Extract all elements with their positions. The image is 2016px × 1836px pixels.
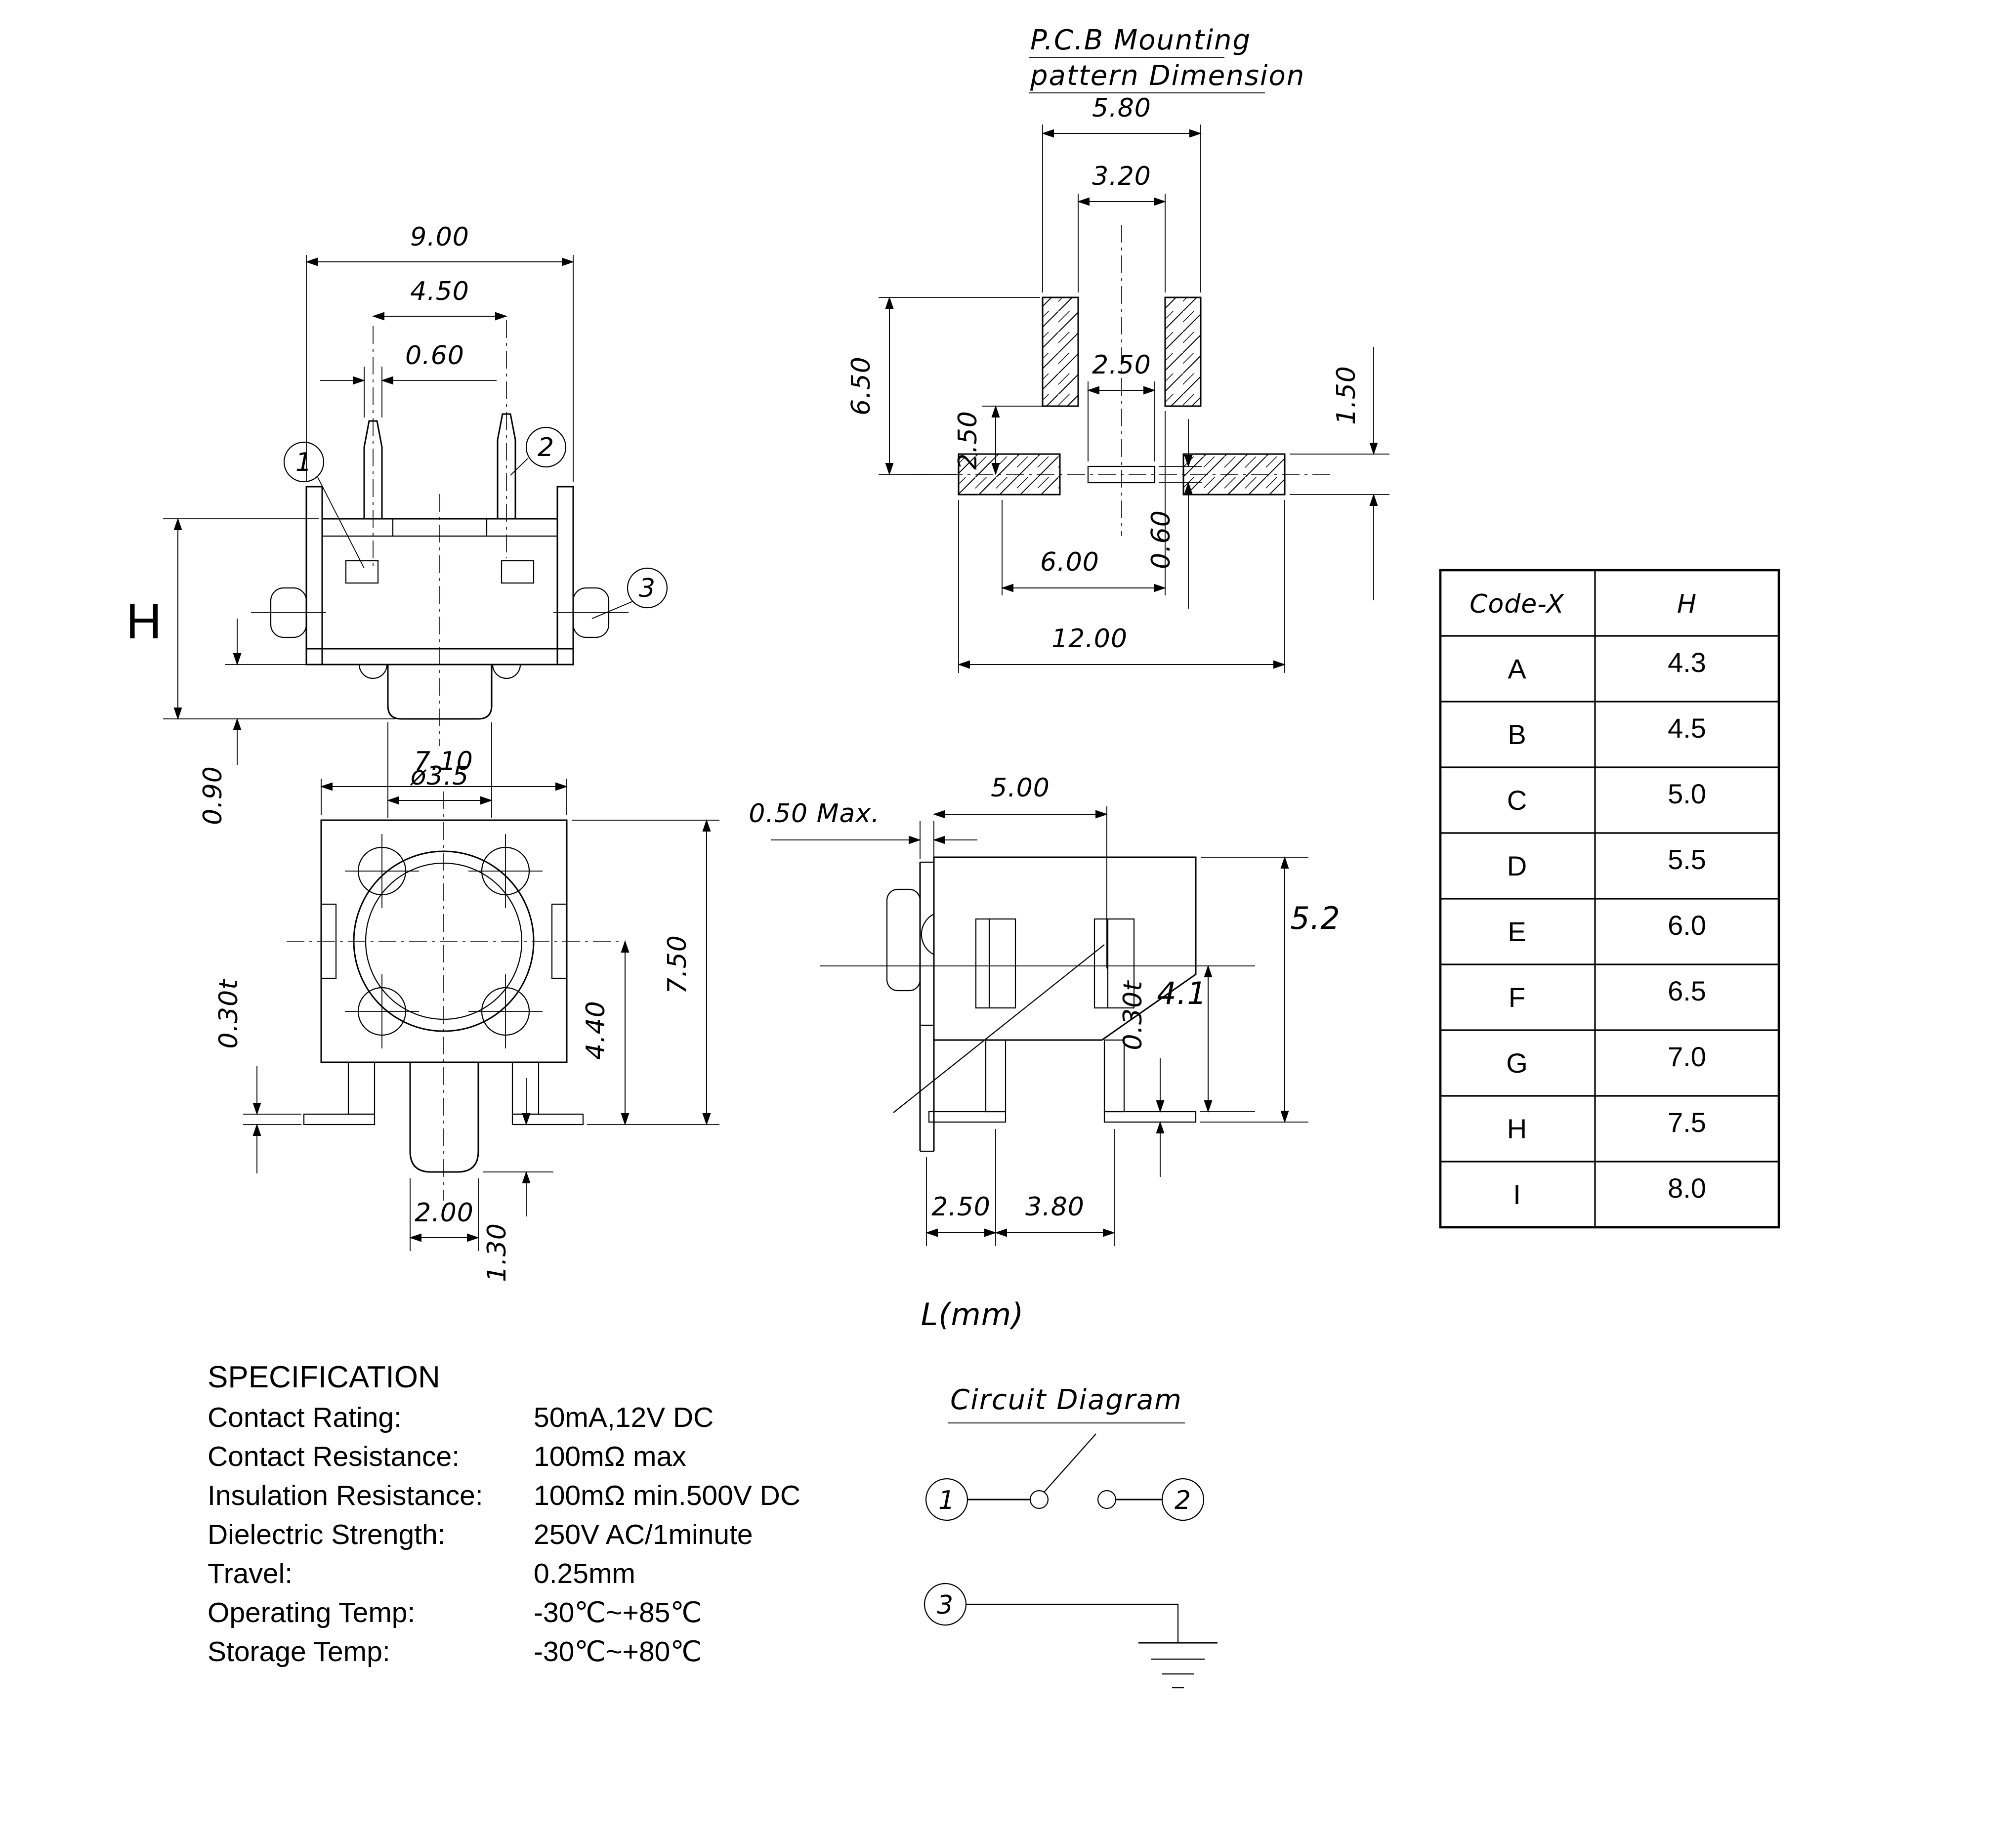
circuit-diagram: Circuit Diagram 1 2 3 [924,1384,1218,1688]
dim-pad-height: 6.50 [846,356,876,416]
lever-line [893,945,1104,1113]
table-cell-h: 8.0 [1668,1172,1706,1204]
button-seat-arc [922,914,934,955]
table-cell-code: B [1508,719,1526,750]
table-header-code: Code-X [1470,589,1564,619]
specification-block: SPECIFICATION Contact Rating: 50mA,12V D… [208,1360,800,1668]
dim-stub-depth: 1.30 [482,1223,512,1282]
pcb-pattern-view: P.C.B Mounting pattern Dimension 5.80 3.… [846,24,1389,673]
leg-left [348,1062,375,1114]
push-button [887,889,920,991]
dim-pin-width: 0.60 [405,341,464,371]
leg-right [512,1062,539,1114]
ground-symbol [1138,1643,1218,1688]
pin3-balloon-label: 3 [639,574,656,603]
table-cell-h: 6.5 [1668,975,1706,1006]
dim-pin-pitch: 4.50 [410,277,469,306]
terminal-1-label: 1 [938,1486,955,1515]
front-view: 1 2 3 9.00 4.50 0.60 H 0.90 [126,222,667,825]
table-cell-code: F [1509,982,1525,1013]
spec-label: Operating Temp: [208,1597,415,1628]
side-body [934,857,1196,1040]
pcb-title-line2: pattern Dimension [1030,60,1305,92]
dim-pad-span-inner: 3.20 [1092,162,1151,191]
table-cell-code: H [1507,1113,1527,1144]
dim-pad-span-outer: 5.80 [1092,93,1151,123]
table-cell-code: G [1506,1047,1528,1079]
table-header-h: H [1677,589,1697,619]
spec-value: -30℃~+80℃ [534,1636,702,1668]
dim-slot-height: 0.60 [1146,510,1176,569]
dim-top-overall-height: 7.50 [663,935,692,994]
spec-value: 0.25mm [534,1558,635,1589]
ground-wire [966,1604,1178,1643]
dim-body-height: H [126,594,162,649]
pcb-pad-top-right [1165,297,1201,406]
table-cell-h: 5.5 [1668,844,1706,875]
table-cell-h: 5.0 [1668,778,1706,809]
table-cell-h: 4.3 [1668,647,1706,678]
dim-side-leg-height: 4.1 [1157,975,1207,1011]
dim-clearance: 0.50 Max. [749,799,880,829]
dim-side-pad-height: 1.50 [1332,366,1361,425]
terminal-2-label: 2 [1175,1486,1191,1515]
contact-right [1098,1491,1116,1508]
foot-left [304,1114,375,1125]
circuit-title: Circuit Diagram [950,1384,1182,1416]
drawing-canvas: 1 2 3 9.00 4.50 0.60 H 0.90 [0,0,2016,1836]
dim-standoff: 0.90 [198,766,228,825]
table-cell-h: 6.0 [1668,910,1706,941]
dim-side-body-width: 5.00 [991,773,1050,803]
dim-side-overall-height: 5.2 [1290,900,1341,936]
foot-right [512,1114,583,1125]
center-stub [410,1062,478,1172]
spec-label: Travel: [208,1558,293,1589]
dim-top-leg-span: 4.40 [581,1001,611,1060]
table-cell-code: I [1513,1179,1521,1210]
side-foot-left [929,1112,1006,1122]
dim-stub-width: 2.00 [415,1198,474,1228]
table-rows: A 4.3 B 4.5 C 5.0 D 5.5 E 6.0 F 6.5 G 7.… [1506,647,1706,1210]
dim-half-span: 6.00 [1040,547,1099,577]
spec-label: Insulation Resistance: [208,1480,483,1511]
spec-label: Contact Resistance: [208,1441,460,1472]
dim-pitch-b: 3.80 [1025,1192,1085,1222]
spec-value: -30℃~+85℃ [534,1597,702,1628]
spec-label: Storage Temp: [208,1636,390,1668]
spec-value: 100mΩ max [534,1441,686,1472]
unit-label: L(mm) [921,1296,1024,1333]
dim-pad-offset: 2.50 [953,411,983,470]
pin-2 [498,320,515,558]
engineering-drawing-sheet: 1 2 3 9.00 4.50 0.60 H 0.90 [0,0,2016,1836]
contact-left [1030,1491,1048,1508]
bracket-strip [920,862,934,1151]
pin-1 [364,326,382,566]
table-cell-h: 7.0 [1668,1041,1706,1072]
side-view: 0.50 Max. 5.00 5.2 4.1 0.30t 2.50 3.80 L… [749,773,1340,1333]
dim-total-span: 12.00 [1051,624,1128,654]
bracket-right-post [557,487,573,665]
side-pin-left [976,919,1015,1008]
table-cell-h: 4.5 [1668,712,1706,744]
side-foot-right [1104,1112,1196,1122]
bracket-left-post [306,487,322,665]
dim-side-metal-thickness: 0.30t [1118,980,1148,1050]
switch-lever [1044,1434,1096,1492]
terminal-3-label: 3 [937,1590,954,1620]
table-cell-h: 7.5 [1668,1107,1706,1138]
table-cell-code: C [1507,785,1527,816]
side-leg-left [986,1040,1006,1112]
table-cell-code: D [1507,850,1527,881]
table-cell-code: E [1508,916,1526,947]
body-window-right [502,561,534,583]
pcb-pad-top-left [1043,297,1078,406]
pin1-balloon-label: 1 [295,448,312,477]
spec-value: 250V AC/1minute [534,1519,753,1550]
locator-bump-left [359,665,387,678]
dim-overall-width: 9.00 [410,222,469,252]
spec-value: 50mA,12V DC [534,1402,714,1433]
dim-pitch-a: 2.50 [931,1192,991,1222]
dim-slot-width: 2.50 [1092,350,1151,380]
dim-top-body-width: 7.10 [414,747,473,776]
spec-value: 100mΩ min.500V DC [534,1480,800,1511]
pcb-title-line1: P.C.B Mounting [1030,24,1251,56]
locator-bump-right [493,665,520,678]
spec-title: SPECIFICATION [208,1360,440,1394]
top-view: 7.10 0.30t 7.50 4.40 2.00 1.30 [214,747,719,1282]
spec-label: Contact Rating: [208,1402,402,1433]
table-cell-code: A [1508,653,1526,684]
code-height-table: Code-X H A 4.3 B 4.5 C 5.0 D 5.5 E 6.0 F… [1440,570,1779,1227]
pin2-balloon-label: 2 [538,433,554,462]
side-leg-right [1104,1040,1124,1112]
dim-top-metal-thickness: 0.30t [214,979,244,1049]
spec-label: Dielectric Strength: [208,1519,446,1550]
